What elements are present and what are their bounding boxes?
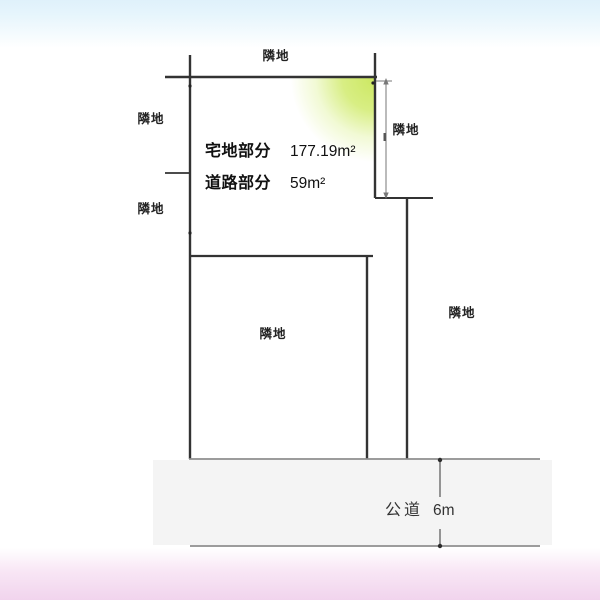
plot-diagram: 隣地 隣地 隣地 隣地 隣地 隣地 宅地部分 177.19m² 道路部分 59m…	[0, 0, 600, 600]
residential-area-value: 177.19m²	[290, 143, 355, 162]
road-dimension-dot-bottom	[438, 544, 442, 548]
neighbor-label-right-far: 隣地	[430, 306, 494, 321]
neighbor-label-top: 隣地	[244, 49, 308, 64]
road-portion-area-row: 道路部分 59m²	[205, 174, 325, 194]
neighbor-label-right-upper: 隣地	[374, 123, 438, 138]
residential-area-label: 宅地部分	[205, 142, 271, 161]
survey-point-dot	[371, 81, 374, 84]
road-portion-area-label: 道路部分	[205, 174, 271, 193]
neighbor-label-inner-plot: 隣地	[241, 327, 305, 342]
road-portion-area-value: 59m²	[290, 175, 325, 194]
neighbor-label-left-lower: 隣地	[119, 202, 183, 217]
residential-area-row: 宅地部分 177.19m²	[205, 142, 356, 162]
road-dimension-dot-top	[438, 458, 442, 462]
boundary-lines-layer	[0, 0, 600, 600]
neighbor-label-left-upper: 隣地	[119, 112, 183, 127]
public-road-width: 6m	[433, 502, 455, 521]
survey-point-dot	[188, 84, 191, 87]
public-road-label: 公道	[385, 501, 423, 520]
survey-point-dot	[188, 231, 191, 234]
